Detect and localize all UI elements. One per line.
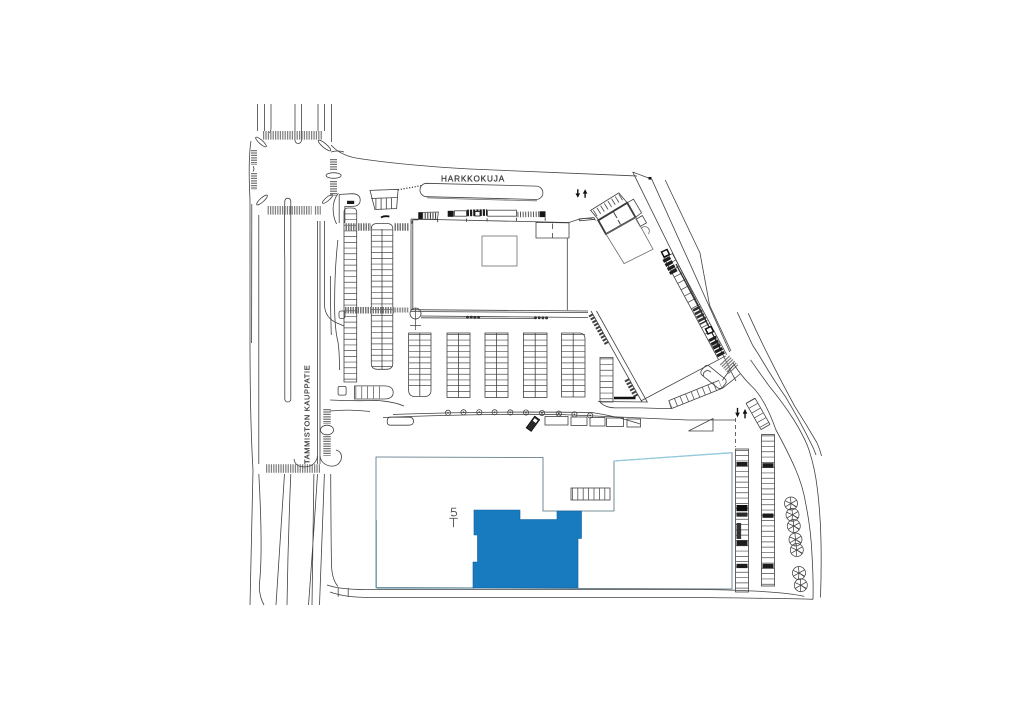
svg-text:HARKKOKUJA: HARKKOKUJA: [441, 175, 505, 184]
svg-text:TAMMISTON KAUPPATIE: TAMMISTON KAUPPATIE: [303, 365, 312, 464]
